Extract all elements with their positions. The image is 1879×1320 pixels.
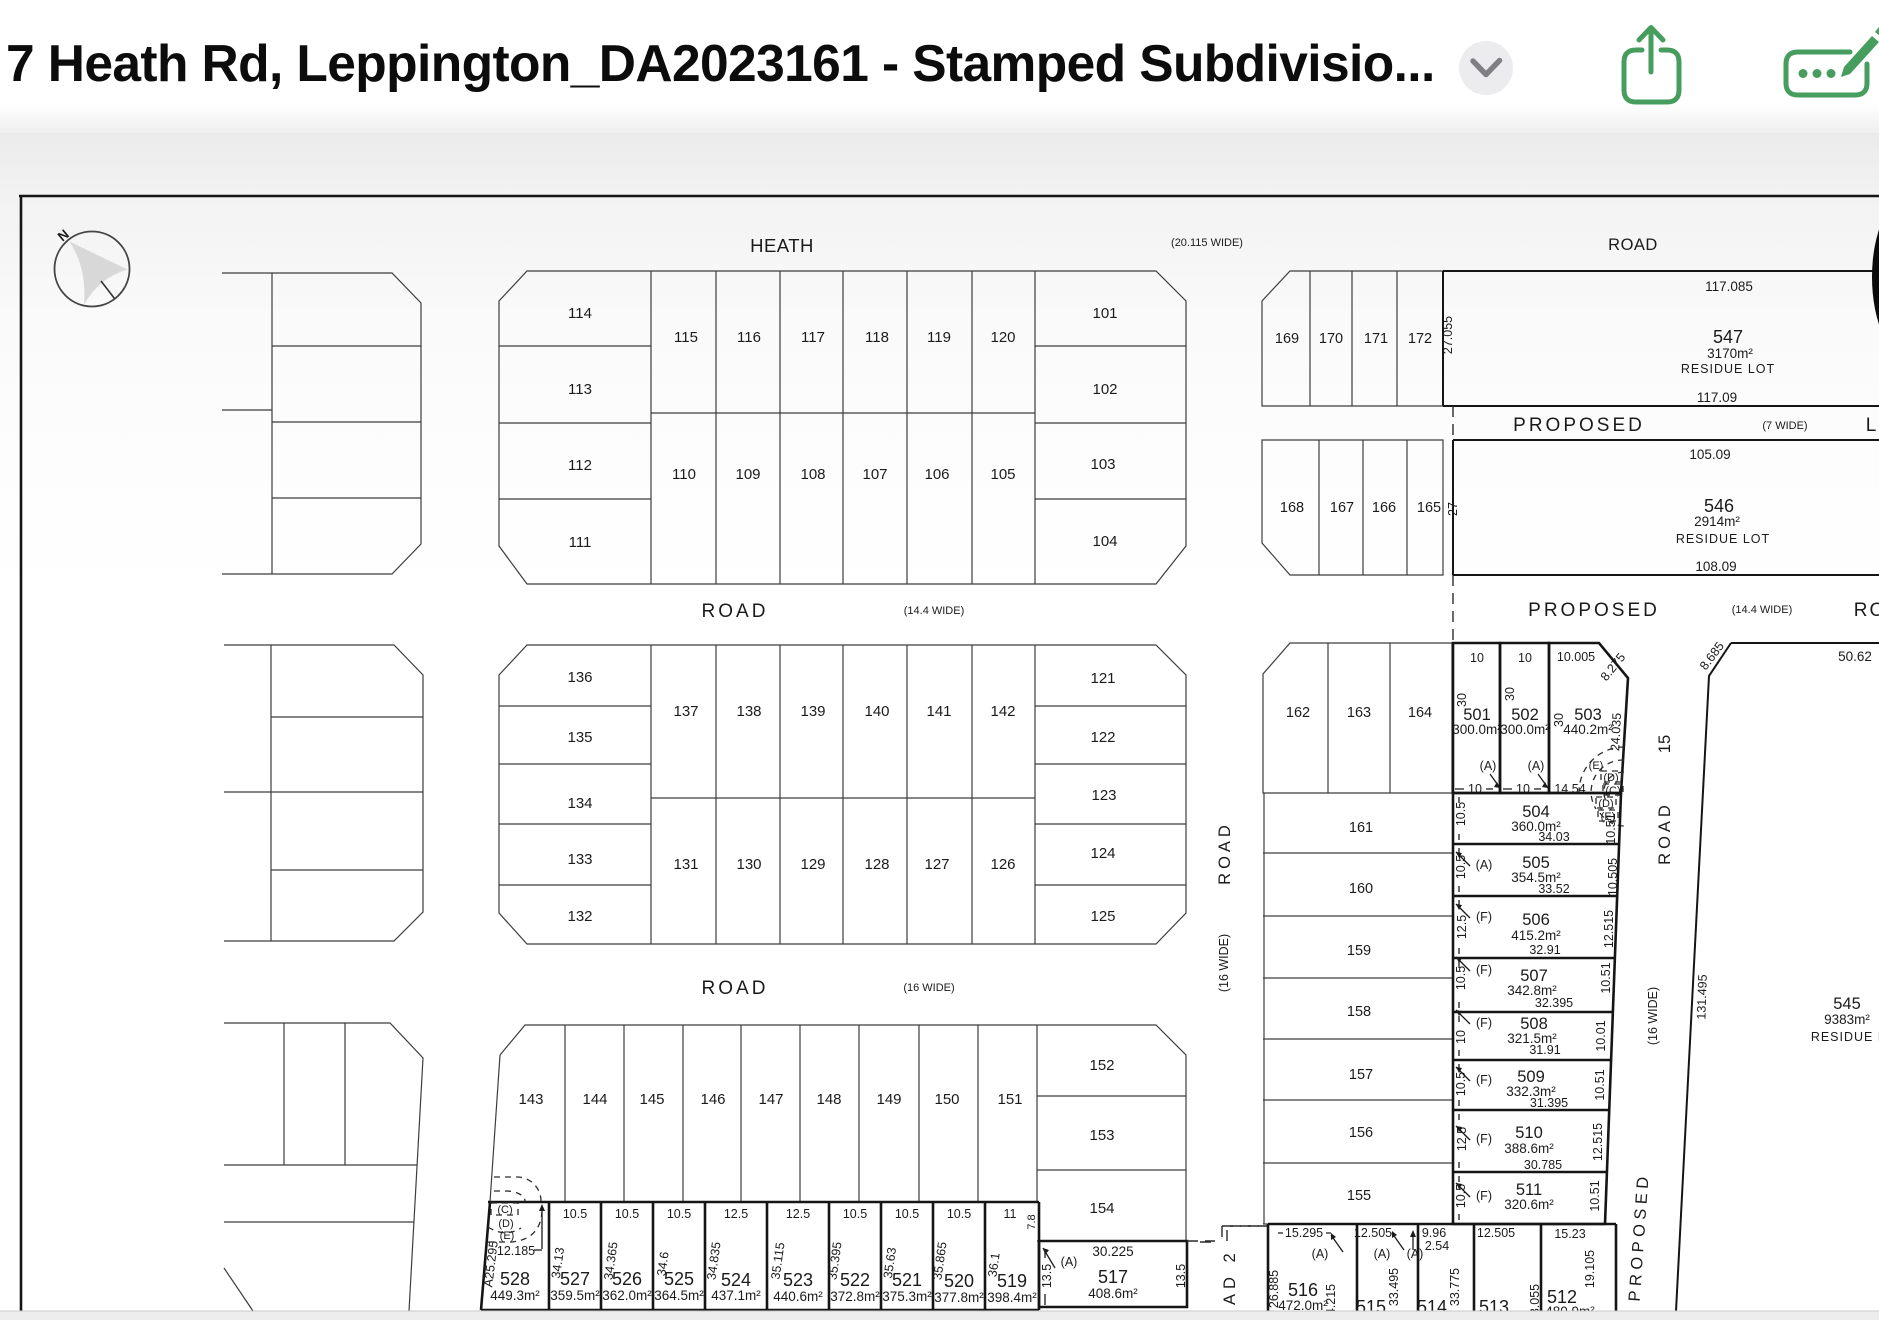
svg-text:ROAD: ROAD <box>1216 821 1234 885</box>
svg-text:10.5: 10.5 <box>615 1207 639 1221</box>
svg-text:(16 WIDE): (16 WIDE) <box>1217 934 1231 992</box>
svg-text:320.6m²: 320.6m² <box>1504 1197 1554 1212</box>
svg-text:127: 127 <box>924 856 949 873</box>
svg-text:104: 104 <box>1092 533 1117 550</box>
svg-text:10.005: 10.005 <box>1557 650 1595 664</box>
svg-text:388.6m²: 388.6m² <box>1504 1141 1554 1156</box>
svg-text:10.5: 10.5 <box>1454 966 1468 990</box>
svg-text:50.62: 50.62 <box>1838 649 1872 664</box>
svg-text:10.5: 10.5 <box>1454 802 1468 826</box>
svg-text:440.2m²: 440.2m² <box>1563 722 1613 737</box>
svg-text:10.01: 10.01 <box>1594 1020 1608 1051</box>
svg-text:144: 144 <box>582 1091 607 1108</box>
svg-text:30: 30 <box>1503 687 1517 701</box>
svg-text:527: 527 <box>560 1269 590 1289</box>
svg-text:159: 159 <box>1347 943 1371 959</box>
svg-text:151: 151 <box>997 1091 1022 1108</box>
svg-text:142: 142 <box>990 703 1015 720</box>
svg-text:12.515: 12.515 <box>1591 1123 1605 1161</box>
svg-text:102: 102 <box>1092 381 1117 398</box>
svg-text:32.91: 32.91 <box>1529 943 1560 957</box>
svg-text:10: 10 <box>1470 651 1484 665</box>
svg-text:(F): (F) <box>1476 910 1492 924</box>
svg-text:(F): (F) <box>1476 963 1492 977</box>
svg-text:133: 133 <box>567 851 592 868</box>
svg-text:120: 120 <box>990 329 1015 346</box>
svg-text:110: 110 <box>672 466 696 483</box>
svg-text:15: 15 <box>1656 735 1674 753</box>
svg-text:2.54: 2.54 <box>1425 1239 1449 1253</box>
svg-text:(F): (F) <box>1476 1189 1492 1203</box>
svg-text:103: 103 <box>1090 456 1115 473</box>
svg-text:126: 126 <box>990 856 1015 873</box>
svg-text:30.785: 30.785 <box>1524 1158 1562 1172</box>
svg-text:115: 115 <box>674 329 698 346</box>
svg-text:547: 547 <box>1713 327 1743 347</box>
svg-text:(F): (F) <box>1476 1132 1492 1146</box>
svg-text:(F): (F) <box>1476 1073 1492 1087</box>
svg-text:105: 105 <box>990 466 1015 483</box>
svg-text:10.5: 10.5 <box>1454 1184 1468 1208</box>
svg-text:128: 128 <box>864 856 889 873</box>
svg-text:510: 510 <box>1515 1124 1543 1142</box>
svg-text:(A): (A) <box>1528 759 1545 773</box>
svg-text:300.0m²: 300.0m² <box>1500 722 1550 737</box>
svg-text:525: 525 <box>664 1269 694 1289</box>
svg-text:139: 139 <box>800 703 825 720</box>
svg-text:(A): (A) <box>1374 1247 1391 1261</box>
svg-text:116: 116 <box>737 329 761 346</box>
svg-text:(C): (C) <box>497 1204 512 1216</box>
svg-text:415.2m²: 415.2m² <box>1511 928 1561 943</box>
svg-text:105.09: 105.09 <box>1689 447 1730 462</box>
svg-text:10: 10 <box>1454 1030 1468 1044</box>
svg-text:ROAD: ROAD <box>702 978 769 999</box>
svg-text:(16 WIDE): (16 WIDE) <box>1646 987 1660 1045</box>
svg-text:3170m²: 3170m² <box>1707 346 1753 361</box>
svg-text:(A): (A) <box>1312 1247 1329 1261</box>
svg-text:12.5: 12.5 <box>786 1207 810 1221</box>
svg-text:125: 125 <box>1090 908 1115 925</box>
svg-text:12.5: 12.5 <box>1455 1127 1469 1151</box>
svg-text:9.96: 9.96 <box>1422 1226 1446 1240</box>
svg-text:170: 170 <box>1319 331 1343 347</box>
svg-text:PROPOSED: PROPOSED <box>1513 415 1645 436</box>
svg-text:106: 106 <box>924 466 949 483</box>
svg-text:10.51: 10.51 <box>1593 1069 1607 1100</box>
svg-text:117.085: 117.085 <box>1705 279 1753 294</box>
svg-text:10.5: 10.5 <box>895 1207 919 1221</box>
svg-text:27: 27 <box>1446 502 1460 516</box>
svg-text:(7 WIDE): (7 WIDE) <box>1762 420 1807 432</box>
svg-text:10.51: 10.51 <box>1588 1180 1602 1211</box>
svg-text:10.5: 10.5 <box>947 1207 971 1221</box>
svg-text:30.225: 30.225 <box>1092 1244 1133 1259</box>
svg-text:(F): (F) <box>1476 1016 1492 1030</box>
svg-text:13.5: 13.5 <box>1174 1264 1188 1288</box>
svg-text:12.505: 12.505 <box>1354 1226 1392 1240</box>
svg-text:449.3m²: 449.3m² <box>490 1288 540 1303</box>
svg-text:523: 523 <box>783 1270 813 1290</box>
svg-text:161: 161 <box>1349 820 1373 836</box>
svg-text:359.5m²: 359.5m² <box>550 1288 600 1303</box>
svg-text:167: 167 <box>1330 500 1354 516</box>
svg-text:158: 158 <box>1347 1004 1371 1020</box>
svg-text:118: 118 <box>865 329 889 346</box>
svg-text:546: 546 <box>1704 496 1734 516</box>
svg-text:2914m²: 2914m² <box>1694 514 1740 529</box>
svg-text:129: 129 <box>800 856 825 873</box>
svg-text:ROAD: ROAD <box>1656 801 1674 865</box>
svg-text:109: 109 <box>735 466 760 483</box>
svg-text:107: 107 <box>862 466 887 483</box>
svg-text:10.5: 10.5 <box>1454 855 1468 879</box>
svg-text:RO: RO <box>1854 600 1879 621</box>
svg-text:15.295: 15.295 <box>1285 1226 1323 1240</box>
svg-text:145: 145 <box>639 1091 664 1108</box>
svg-text:134: 134 <box>567 795 592 812</box>
svg-text:111: 111 <box>569 534 592 551</box>
svg-text:(A): (A) <box>1061 1255 1078 1269</box>
svg-text:10.5: 10.5 <box>667 1207 691 1221</box>
svg-text:113: 113 <box>568 381 592 398</box>
svg-text:506: 506 <box>1522 911 1550 929</box>
svg-text:30: 30 <box>1455 693 1469 707</box>
svg-text:152: 152 <box>1089 1057 1114 1074</box>
svg-text:131.495: 131.495 <box>1694 974 1710 1020</box>
svg-text:362.0m²: 362.0m² <box>602 1288 652 1303</box>
svg-text:12.5: 12.5 <box>724 1207 748 1221</box>
svg-text:13.5: 13.5 <box>1040 1264 1054 1288</box>
svg-text:(14.4 WIDE): (14.4 WIDE) <box>904 605 965 617</box>
svg-text:10.505: 10.505 <box>1606 858 1620 896</box>
svg-text:163: 163 <box>1347 705 1371 721</box>
svg-text:146: 146 <box>700 1091 725 1108</box>
svg-text:101: 101 <box>1092 305 1117 322</box>
svg-text:(14.4 WIDE): (14.4 WIDE) <box>1732 604 1793 616</box>
svg-text:RESIDUE LOT: RESIDUE LOT <box>1811 1030 1879 1044</box>
svg-text:168: 168 <box>1280 500 1304 516</box>
svg-text:(A): (A) <box>1480 759 1497 773</box>
svg-text:33.52: 33.52 <box>1538 882 1569 896</box>
svg-text:34.03: 34.03 <box>1538 830 1569 844</box>
svg-text:160: 160 <box>1349 881 1373 897</box>
svg-text:519: 519 <box>997 1271 1027 1291</box>
svg-text:124: 124 <box>1090 845 1115 862</box>
svg-text:108.09: 108.09 <box>1695 559 1736 574</box>
svg-text:(E): (E) <box>500 1230 515 1242</box>
svg-text:26.885: 26.885 <box>1267 1270 1281 1308</box>
svg-text:437.1m²: 437.1m² <box>711 1288 761 1303</box>
svg-text:PROPOSED: PROPOSED <box>1528 600 1660 621</box>
svg-text:157: 157 <box>1349 1067 1373 1083</box>
svg-text:440.6m²: 440.6m² <box>773 1289 823 1304</box>
svg-text:156: 156 <box>1349 1125 1373 1141</box>
svg-text:545: 545 <box>1833 995 1861 1013</box>
svg-text:300.0m²: 300.0m² <box>1452 722 1502 737</box>
svg-text:33.775: 33.775 <box>1448 1268 1462 1306</box>
svg-text:(20.115 WIDE): (20.115 WIDE) <box>1171 237 1243 249</box>
svg-text:117: 117 <box>801 329 825 346</box>
svg-text:131: 131 <box>673 856 698 873</box>
svg-text:31.91: 31.91 <box>1529 1043 1560 1057</box>
svg-text:137: 137 <box>673 703 698 720</box>
svg-text:10.51: 10.51 <box>1599 962 1613 993</box>
svg-text:147: 147 <box>758 1091 783 1108</box>
svg-text:138: 138 <box>736 703 761 720</box>
svg-text:19.105: 19.105 <box>1583 1250 1597 1288</box>
svg-text:ROAD: ROAD <box>702 601 769 622</box>
svg-text:150: 150 <box>934 1091 959 1108</box>
svg-text:517: 517 <box>1098 1267 1128 1287</box>
svg-text:149: 149 <box>876 1091 901 1108</box>
svg-text:117.09: 117.09 <box>1697 390 1737 405</box>
svg-text:119: 119 <box>927 329 951 346</box>
svg-text:364.5m²: 364.5m² <box>654 1288 704 1303</box>
svg-text:33.495: 33.495 <box>1387 1268 1401 1306</box>
svg-text:12.185: 12.185 <box>497 1244 535 1258</box>
svg-text:372.8m²: 372.8m² <box>830 1289 880 1304</box>
svg-text:24.035: 24.035 <box>1608 712 1624 751</box>
svg-text:10.5: 10.5 <box>843 1207 867 1221</box>
svg-text:7.8: 7.8 <box>1026 1214 1038 1229</box>
svg-text:165: 165 <box>1417 500 1441 516</box>
svg-text:521: 521 <box>892 1270 922 1290</box>
svg-text:164: 164 <box>1408 705 1432 721</box>
svg-text:123: 123 <box>1091 787 1116 804</box>
svg-text:10: 10 <box>1518 651 1532 665</box>
svg-text:RESIDUE LOT: RESIDUE LOT <box>1681 362 1775 376</box>
svg-text:520: 520 <box>944 1271 974 1291</box>
svg-text:15.23: 15.23 <box>1554 1227 1585 1241</box>
svg-text:408.6m²: 408.6m² <box>1088 1286 1138 1301</box>
svg-text:141: 141 <box>926 703 951 720</box>
svg-text:(A): (A) <box>1476 858 1493 872</box>
svg-text:171: 171 <box>1364 331 1388 347</box>
svg-text:122: 122 <box>1090 729 1115 746</box>
svg-text:11: 11 <box>1004 1207 1017 1221</box>
svg-text:10.5: 10.5 <box>563 1207 587 1221</box>
svg-text:ROAD: ROAD <box>1608 236 1658 254</box>
svg-text:528: 528 <box>500 1269 530 1289</box>
svg-text:RESIDUE LOT: RESIDUE LOT <box>1676 532 1770 546</box>
svg-text:154: 154 <box>1089 1200 1114 1217</box>
svg-text:516: 516 <box>1288 1280 1318 1300</box>
svg-text:(A): (A) <box>1407 1247 1424 1261</box>
svg-text:108: 108 <box>800 466 825 483</box>
svg-text:526: 526 <box>612 1269 642 1289</box>
svg-text:377.8m²: 377.8m² <box>934 1290 984 1305</box>
svg-text:524: 524 <box>721 1270 751 1290</box>
svg-text:(E): (E) <box>1589 760 1604 772</box>
svg-text:121: 121 <box>1090 670 1115 687</box>
svg-text:375.3m²: 375.3m² <box>882 1289 932 1304</box>
svg-text:ROAD 2: ROAD 2 <box>1221 1248 1239 1320</box>
svg-text:10.5: 10.5 <box>1454 1072 1468 1096</box>
svg-text:(D): (D) <box>498 1218 513 1230</box>
svg-text:398.4m²: 398.4m² <box>987 1290 1037 1305</box>
svg-text:135: 135 <box>567 729 592 746</box>
svg-text:114: 114 <box>568 305 592 322</box>
svg-text:112: 112 <box>568 457 592 474</box>
svg-text:148: 148 <box>816 1091 841 1108</box>
svg-text:10.51: 10.51 <box>1604 813 1618 844</box>
svg-text:27.055: 27.055 <box>1441 316 1455 354</box>
svg-text:155: 155 <box>1347 1188 1371 1204</box>
svg-text:162: 162 <box>1286 705 1310 721</box>
svg-text:HEATH: HEATH <box>750 235 814 256</box>
svg-text:143: 143 <box>518 1091 543 1108</box>
svg-text:12.505: 12.505 <box>1477 1226 1515 1240</box>
svg-text:32.395: 32.395 <box>1535 996 1573 1010</box>
svg-text:132: 132 <box>567 908 592 925</box>
svg-text:31.395: 31.395 <box>1530 1096 1568 1110</box>
svg-text:522: 522 <box>840 1270 870 1290</box>
svg-text:(16 WIDE): (16 WIDE) <box>903 982 954 994</box>
svg-text:9383m²: 9383m² <box>1824 1012 1870 1027</box>
svg-text:140: 140 <box>864 703 889 720</box>
svg-text:172: 172 <box>1408 331 1432 347</box>
svg-text:130: 130 <box>736 856 761 873</box>
svg-text:166: 166 <box>1372 500 1396 516</box>
svg-text:153: 153 <box>1089 1127 1114 1144</box>
svg-text:L: L <box>1866 415 1877 436</box>
svg-text:169: 169 <box>1275 331 1299 347</box>
svg-text:12.5: 12.5 <box>1455 915 1469 939</box>
svg-text:136: 136 <box>567 669 592 686</box>
svg-text:12.515: 12.515 <box>1602 910 1616 948</box>
